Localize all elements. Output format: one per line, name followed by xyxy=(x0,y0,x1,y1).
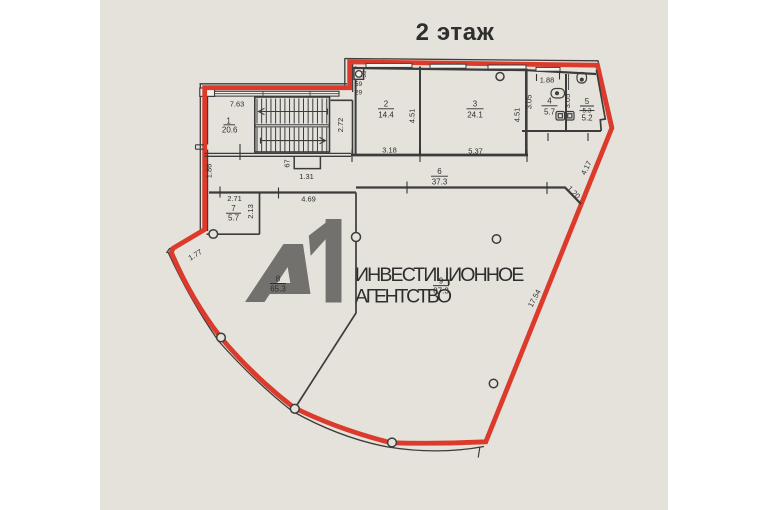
svg-text:87.3: 87.3 xyxy=(433,287,449,296)
svg-text:20.6: 20.6 xyxy=(222,125,238,134)
svg-text:4.51: 4.51 xyxy=(513,108,522,123)
svg-text:1.88: 1.88 xyxy=(540,75,555,84)
svg-text:24.1: 24.1 xyxy=(467,111,483,120)
svg-text:6: 6 xyxy=(437,167,442,176)
svg-text:37.3: 37.3 xyxy=(432,178,448,187)
svg-text:5.7: 5.7 xyxy=(544,107,556,116)
svg-text:4.69: 4.69 xyxy=(301,195,316,204)
svg-text:5.37: 5.37 xyxy=(468,147,483,156)
svg-text:4: 4 xyxy=(547,97,552,106)
svg-text:65.3: 65.3 xyxy=(270,285,286,294)
svg-text:3: 3 xyxy=(473,100,478,109)
svg-text:5: 5 xyxy=(585,97,590,106)
svg-text:3.05: 3.05 xyxy=(563,94,572,109)
svg-text:1.86: 1.86 xyxy=(205,164,214,179)
svg-text:59: 59 xyxy=(355,81,363,88)
svg-text:2.72: 2.72 xyxy=(336,118,345,133)
svg-text:2: 2 xyxy=(384,100,389,109)
svg-text:5.2: 5.2 xyxy=(581,114,593,123)
svg-text:5.7: 5.7 xyxy=(228,213,240,222)
svg-text:59: 59 xyxy=(361,70,368,78)
svg-text:2.71: 2.71 xyxy=(227,194,242,203)
svg-text:14.4: 14.4 xyxy=(378,111,394,120)
svg-text:2 этаж: 2 этаж xyxy=(416,19,495,46)
svg-text:3.18: 3.18 xyxy=(382,146,397,155)
svg-text:1.31: 1.31 xyxy=(299,172,314,181)
svg-text:7.63: 7.63 xyxy=(230,99,245,108)
svg-text:3.05: 3.05 xyxy=(525,95,534,110)
svg-text:8: 8 xyxy=(276,275,281,284)
svg-text:67: 67 xyxy=(283,159,292,167)
svg-text:7: 7 xyxy=(231,204,236,213)
svg-text:4.51: 4.51 xyxy=(408,109,417,124)
svg-text:1: 1 xyxy=(226,116,231,125)
svg-text:29: 29 xyxy=(355,90,363,97)
svg-text:9: 9 xyxy=(439,277,444,286)
svg-text:2.13: 2.13 xyxy=(246,204,255,219)
